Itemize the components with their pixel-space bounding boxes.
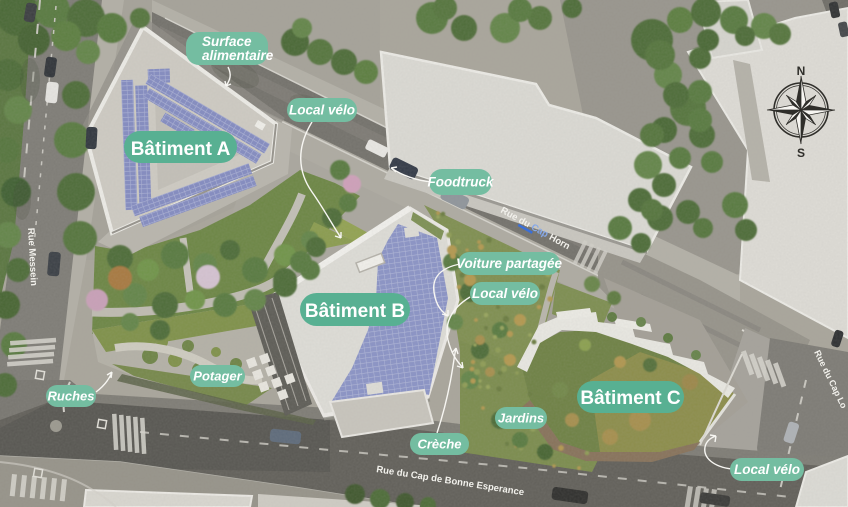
svg-text:Crèche: Crèche xyxy=(417,437,461,452)
svg-text:S: S xyxy=(797,146,805,160)
svg-text:Voiture partagée: Voiture partagée xyxy=(456,256,563,271)
svg-text:Ruches: Ruches xyxy=(48,389,95,404)
svg-text:Bâtiment A: Bâtiment A xyxy=(131,139,231,160)
svg-text:alimentaire: alimentaire xyxy=(202,48,274,63)
svg-text:N: N xyxy=(797,64,806,78)
svg-text:Bâtiment C: Bâtiment C xyxy=(580,388,681,409)
svg-text:Jardins: Jardins xyxy=(498,411,544,426)
svg-text:Potager: Potager xyxy=(193,369,242,384)
svg-text:Local vélo: Local vélo xyxy=(734,462,800,477)
svg-text:Foodtruck: Foodtruck xyxy=(428,175,495,190)
svg-text:Surface: Surface xyxy=(202,34,252,49)
svg-text:Local vélo: Local vélo xyxy=(289,103,355,118)
svg-text:Bâtiment B: Bâtiment B xyxy=(305,301,405,322)
svg-text:Local vélo: Local vélo xyxy=(472,286,538,301)
